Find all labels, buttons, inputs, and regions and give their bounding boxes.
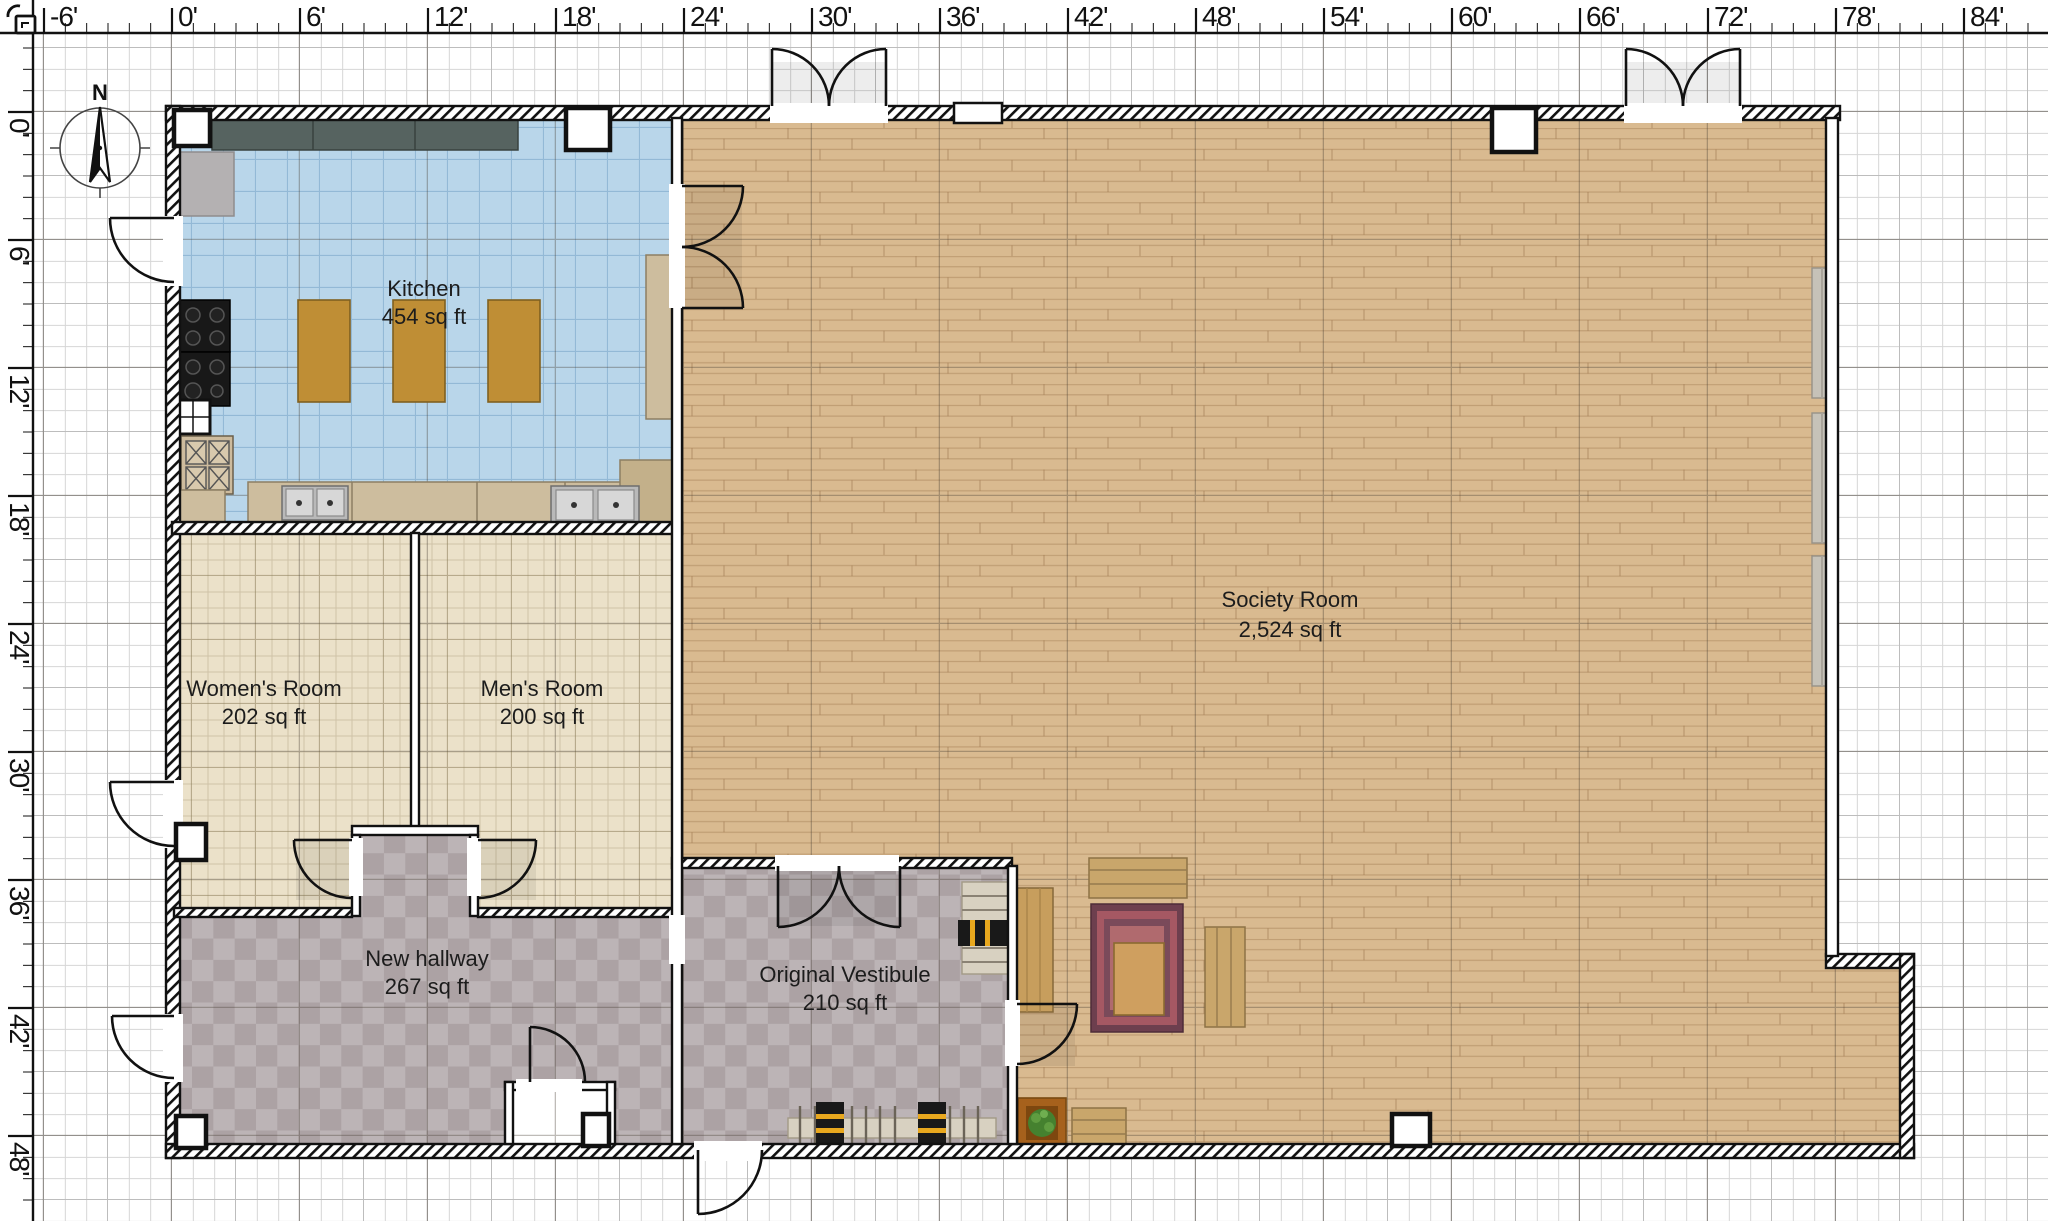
- floor-plan-editor-canvas[interactable]: Kitchen 454 sq ft Society Room 2,524 sq …: [0, 0, 2048, 1221]
- room-area-kitchen[interactable]: 454 sq ft: [382, 304, 466, 329]
- ruler-top-label: 6': [306, 1, 325, 32]
- compass-north-label: N: [92, 80, 108, 105]
- bench-bottom[interactable]: [1072, 1108, 1126, 1148]
- ruler-top-label: 30': [818, 1, 852, 32]
- room-area-vestibule[interactable]: 210 sq ft: [803, 990, 887, 1015]
- room-area-hallway[interactable]: 267 sq ft: [385, 974, 469, 999]
- long-table-vestibule-side[interactable]: [1015, 888, 1053, 1012]
- ruler-left-label: 0': [4, 118, 35, 137]
- wall-east-upper[interactable]: [1826, 118, 1838, 956]
- ruler-top-label: -6': [50, 1, 77, 32]
- kitchen-counter-top[interactable]: [212, 120, 518, 150]
- kitchen-sink-1[interactable]: [282, 486, 348, 520]
- post-closet[interactable]: [583, 1114, 609, 1146]
- ruler-left-label: 6': [4, 246, 35, 265]
- bench-right[interactable]: [1205, 927, 1245, 1027]
- room-label-kitchen[interactable]: Kitchen: [387, 276, 460, 301]
- ruler-left-label: 18': [4, 502, 35, 536]
- ruler-left-label: 24': [4, 630, 35, 664]
- ruler-top-label: 36': [946, 1, 980, 32]
- post-society-south[interactable]: [1392, 1114, 1430, 1146]
- wall-restroom-lobby-north[interactable]: [352, 826, 478, 835]
- wall-closet-west[interactable]: [505, 1082, 513, 1144]
- ruler-top-label: 66': [1586, 1, 1620, 32]
- post-sw-corner[interactable]: [176, 1116, 206, 1148]
- ruler-left-label: 48': [4, 1142, 35, 1176]
- counter-right-vertical[interactable]: [646, 255, 673, 419]
- wall-kitchen-south[interactable]: [172, 522, 682, 534]
- bench-top[interactable]: [1089, 858, 1187, 898]
- ruler-top-label: 72': [1714, 1, 1748, 32]
- room-area-society[interactable]: 2,524 sq ft: [1239, 617, 1342, 642]
- room-area-mens[interactable]: 200 sq ft: [500, 704, 584, 729]
- ruler-top-label: 24': [690, 1, 724, 32]
- ruler-top-label: 54': [1330, 1, 1364, 32]
- ruler-left-label: 42': [4, 1014, 35, 1048]
- stove-tan[interactable]: [181, 436, 233, 494]
- ruler-top-label: 78': [1842, 1, 1876, 32]
- ruler-top-label: 42': [1074, 1, 1108, 32]
- post-kitchen-north[interactable]: [566, 108, 610, 150]
- wall-east-lower[interactable]: [1900, 954, 1914, 1158]
- ruler-top-label: 0': [178, 1, 197, 32]
- ruler-top-label: 60': [1458, 1, 1492, 32]
- room-label-vestibule[interactable]: Original Vestibule: [759, 962, 930, 987]
- kitchen-sink-2[interactable]: [551, 486, 639, 524]
- post-society-north[interactable]: [1492, 108, 1536, 152]
- ruler-top-label: 48': [1202, 1, 1236, 32]
- room-label-womens[interactable]: Women's Room: [186, 676, 341, 701]
- counter-left-low[interactable]: [180, 490, 225, 522]
- range-stove-2[interactable]: [178, 352, 230, 406]
- ruler-top-label: 18': [562, 1, 596, 32]
- room-label-hallway[interactable]: New hallway: [365, 946, 489, 971]
- post-west-middle[interactable]: [176, 824, 206, 860]
- ruler-left-label: 36': [4, 886, 35, 920]
- ruler-top-label: 84': [1970, 1, 2004, 32]
- potted-plant[interactable]: [1018, 1098, 1066, 1148]
- table-on-rug[interactable]: [1114, 943, 1164, 1015]
- wall-hallway-north-west[interactable]: [174, 908, 352, 917]
- room-label-society[interactable]: Society Room: [1222, 587, 1359, 612]
- wall-south[interactable]: [166, 1144, 1914, 1158]
- post-kitchen-nw[interactable]: [174, 110, 210, 146]
- wall-window-north: [954, 103, 1002, 123]
- ruler-top-label: 12': [434, 1, 468, 32]
- wall-restroom-divider[interactable]: [411, 533, 419, 830]
- room-label-mens[interactable]: Men's Room: [481, 676, 604, 701]
- ruler-left-label: 12': [4, 374, 35, 408]
- kitchen-island-table-1[interactable]: [298, 300, 350, 402]
- wall-hallway-north-east[interactable]: [478, 908, 674, 917]
- range-stove-1[interactable]: [178, 300, 230, 352]
- coat-rack-vertical[interactable]: [958, 882, 1010, 974]
- kitchen-island-table-3[interactable]: [488, 300, 540, 402]
- room-area-womens[interactable]: 202 sq ft: [222, 704, 306, 729]
- refrigerator[interactable]: [180, 152, 234, 216]
- ruler-left-label: 30': [4, 758, 35, 792]
